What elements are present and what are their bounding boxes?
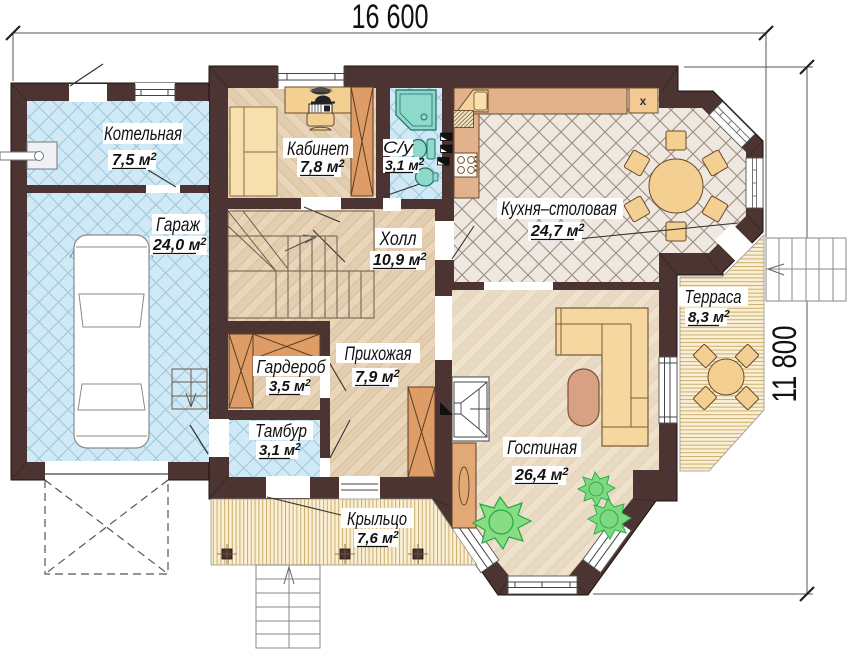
- svg-text:8,3 м2: 8,3 м2: [688, 309, 730, 326]
- svg-text:24,0 м2: 24,0 м2: [152, 236, 207, 254]
- svg-text:7,8 м2: 7,8 м2: [300, 158, 345, 176]
- svg-text:Кухня–столовая: Кухня–столовая: [501, 199, 617, 220]
- svg-text:7,9 м2: 7,9 м2: [355, 368, 400, 386]
- svg-text:24,7 м2: 24,7 м2: [530, 222, 585, 240]
- svg-text:7,6 м2: 7,6 м2: [357, 530, 399, 547]
- svg-text:x: x: [640, 94, 647, 108]
- svg-text:10,9 м2: 10,9 м2: [373, 251, 427, 269]
- svg-text:16 600: 16 600: [352, 0, 429, 36]
- svg-text:7,5 м2: 7,5 м2: [112, 151, 157, 169]
- svg-text:Кабинет: Кабинет: [287, 139, 349, 160]
- svg-text:Крыльцо: Крыльцо: [347, 509, 407, 529]
- svg-text:Гардероб: Гардероб: [257, 357, 327, 377]
- svg-text:Прихожая: Прихожая: [345, 344, 412, 365]
- svg-text:Тамбур: Тамбур: [255, 421, 307, 441]
- svg-text:11 800: 11 800: [766, 326, 804, 403]
- svg-text:Терраса: Терраса: [685, 287, 742, 307]
- svg-text:Холл: Холл: [379, 229, 417, 250]
- svg-text:3,5 м2: 3,5 м2: [269, 378, 311, 395]
- svg-text:3,1 м2: 3,1 м2: [259, 442, 301, 459]
- svg-text:С/у: С/у: [383, 138, 415, 157]
- svg-text:Гараж: Гараж: [156, 215, 201, 236]
- svg-text:Гостиная: Гостиная: [507, 438, 577, 459]
- svg-text:26,4 м2: 26,4 м2: [514, 466, 569, 484]
- svg-text:Котельная: Котельная: [104, 124, 182, 145]
